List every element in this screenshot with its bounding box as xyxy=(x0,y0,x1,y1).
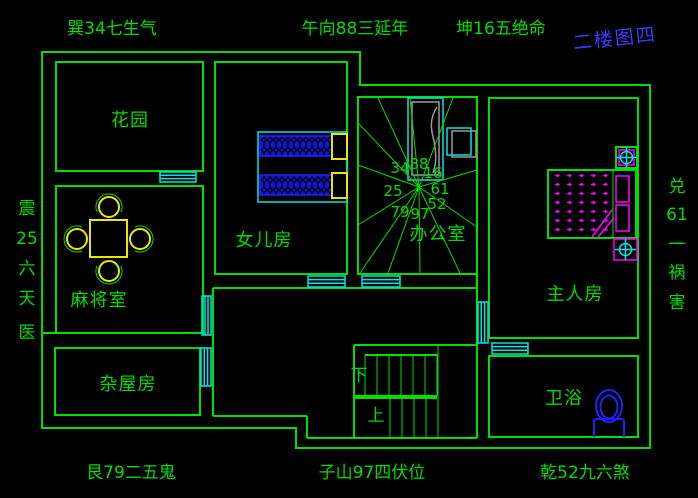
stairs-down-label: 下 xyxy=(351,366,368,386)
window-bath xyxy=(492,343,528,354)
compass-top-left: 巽34七生气 xyxy=(67,19,157,39)
nightstand-bottom xyxy=(614,239,637,260)
compass-left-vertical: 震 25 六 天 医 xyxy=(16,199,38,343)
bed-2 xyxy=(260,175,332,195)
pillow-a xyxy=(616,176,629,202)
svg-text:害: 害 xyxy=(669,293,686,313)
svg-text:61: 61 xyxy=(666,205,688,225)
pillow-b xyxy=(616,205,629,231)
mahjong-table xyxy=(90,220,127,257)
staircase: 下 上 xyxy=(351,345,439,438)
chair-west xyxy=(67,229,87,249)
svg-text:25: 25 xyxy=(16,229,38,249)
svg-text:六: 六 xyxy=(19,259,36,279)
svg-text:兑: 兑 xyxy=(669,177,686,197)
drawing-title: 二楼图四 xyxy=(572,24,658,55)
star-number-se: 52 xyxy=(427,195,446,213)
master-bed xyxy=(548,170,636,238)
window-storage xyxy=(201,348,211,386)
chair-east xyxy=(130,229,150,249)
compass-labels: 巽34七生气 午向88三延年 坤16五绝命 艮79二五鬼 子山97四伏位 乾52… xyxy=(16,19,688,483)
compass-top-right: 坤16五绝命 xyxy=(456,19,546,39)
star-number-nw: 34 xyxy=(390,159,409,177)
room-label-garden: 花园 xyxy=(111,110,149,131)
stairs-up-label: 上 xyxy=(368,406,385,426)
cabinet-frame xyxy=(447,128,471,155)
room-label-master: 主人房 xyxy=(547,284,604,305)
svg-text:震: 震 xyxy=(19,199,36,219)
compass-bottom-right: 乾52九六煞 xyxy=(540,463,630,483)
room-labels: 花园 麻将室 杂屋房 女儿房 办公室 主人房 卫浴 xyxy=(71,110,604,409)
svg-text:一: 一 xyxy=(669,235,686,255)
room-label-bath: 卫浴 xyxy=(545,388,583,409)
compass-right-vertical: 兑 61 一 祸 害 xyxy=(666,177,688,313)
chair-south xyxy=(99,261,119,281)
bagua-star-lines xyxy=(358,98,477,273)
window-daughter xyxy=(308,276,345,287)
star-number-w: 25 xyxy=(383,182,402,200)
pillow-2 xyxy=(332,173,347,198)
room-label-daughter: 女儿房 xyxy=(236,230,293,251)
star-number-sw: 79 xyxy=(390,203,409,221)
room-label-storage: 杂屋房 xyxy=(100,374,157,395)
window-office xyxy=(362,276,400,287)
compass-bottom-center: 子山97四伏位 xyxy=(319,463,426,483)
svg-text:天: 天 xyxy=(19,289,36,309)
window-hall-east xyxy=(478,302,488,343)
pillow-1 xyxy=(332,134,347,159)
toilet-icon xyxy=(594,390,624,437)
compass-top-center: 午向88三延年 xyxy=(302,19,409,39)
lamp-crosshair-icon xyxy=(615,239,636,260)
cabinet xyxy=(452,131,476,157)
svg-text:祸: 祸 xyxy=(669,263,686,283)
window-garden xyxy=(160,172,196,182)
floorplan-canvas: 下 上 xyxy=(0,0,698,498)
daughter-beds xyxy=(258,132,347,202)
chair-backs xyxy=(64,194,153,284)
cad-floorplan-screen: { "drawing": { "title": "二楼图四", "compass… xyxy=(0,0,698,498)
room-label-mahjong: 麻将室 xyxy=(71,290,128,311)
mahjong-table-set xyxy=(64,194,153,284)
bed-quilt xyxy=(551,174,608,234)
bed-1 xyxy=(260,136,332,156)
compass-bottom-left: 艮79二五鬼 xyxy=(86,463,176,483)
svg-text:医: 医 xyxy=(19,323,36,343)
chair-north xyxy=(99,197,119,217)
room-label-office: 办公室 xyxy=(410,224,467,245)
nightstand-top xyxy=(616,147,637,168)
